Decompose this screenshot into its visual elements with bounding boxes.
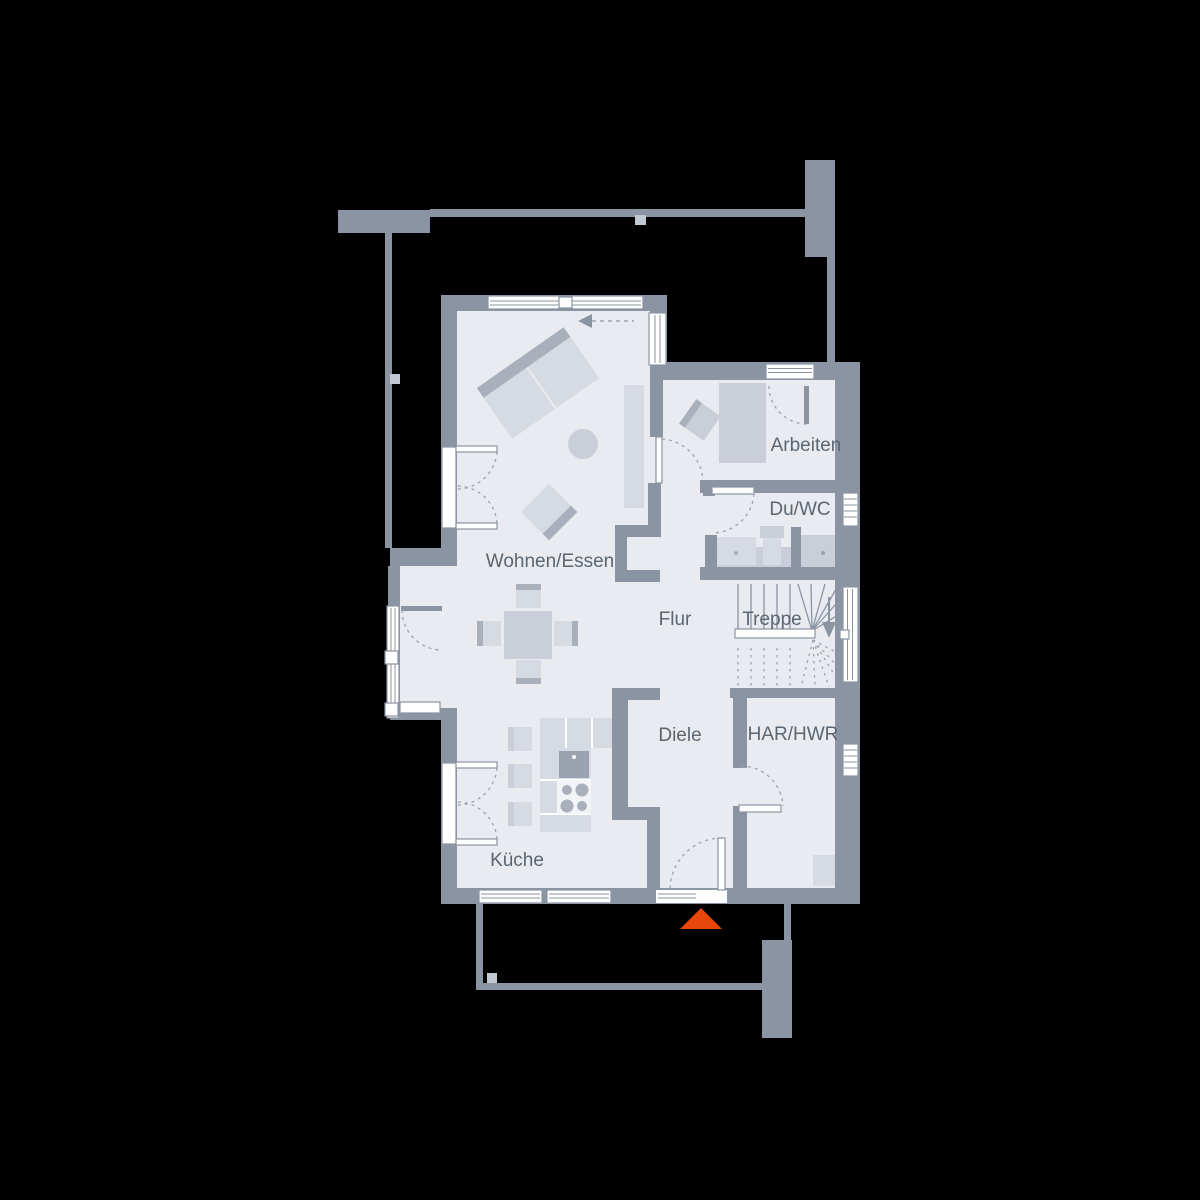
floor-plan-drawing (0, 0, 1200, 1200)
furniture-desk (719, 383, 766, 463)
washbasin (717, 537, 756, 565)
post-marker (487, 973, 497, 983)
room-label-du-wc: Du/WC (769, 499, 830, 521)
window-bath-right (843, 493, 858, 526)
room-label-wohnen-essen: Wohnen/Essen (486, 551, 615, 573)
furniture-coffee-table (568, 429, 598, 459)
window-living-right (649, 313, 666, 365)
furniture-sideboard (624, 385, 644, 508)
room-label-diele: Diele (658, 725, 701, 747)
room-label-har-hwr: HAR/HWR (748, 724, 839, 746)
window-living-top (488, 296, 643, 309)
post-marker (390, 374, 400, 384)
entrance-marker (680, 908, 722, 929)
toilet-bowl (763, 538, 781, 565)
floor-plan-canvas: Wohnen/Essen Küche Flur Treppe Diele HAR… (0, 0, 1200, 1200)
window-stair-right (840, 587, 858, 682)
room-label-flur: Flur (659, 609, 692, 631)
window-utility-right (843, 744, 858, 776)
office-window-door-leaf (804, 386, 809, 424)
bay-door-leaf (401, 606, 442, 611)
toilet-tank (760, 526, 784, 538)
room-label-arbeiten: Arbeiten (771, 435, 842, 457)
room-label-kueche: Küche (490, 850, 544, 872)
post-marker (635, 215, 646, 225)
kitchen-stools (508, 727, 532, 826)
room-label-treppe: Treppe (742, 609, 802, 631)
